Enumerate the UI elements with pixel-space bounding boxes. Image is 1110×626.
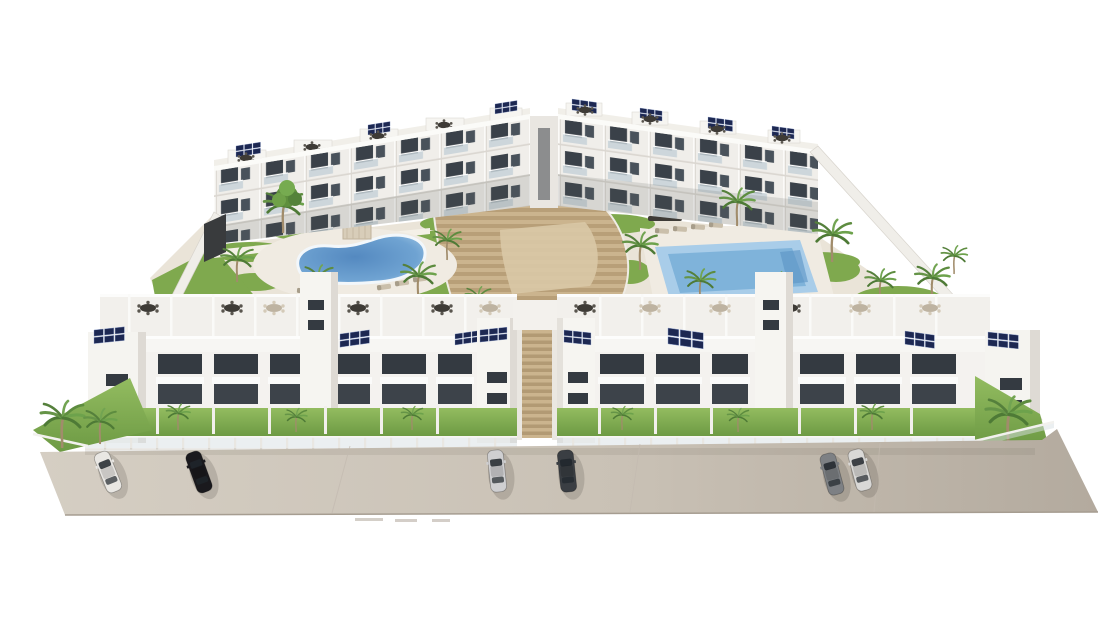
- site-render: Aerial 3D architectural rendering of a n…: [0, 0, 1110, 626]
- central-stair-core: [530, 116, 558, 208]
- front-left-building: [85, 272, 517, 450]
- front-right-building: [557, 272, 1042, 450]
- stairs-landing: [500, 222, 598, 294]
- front-gardens: [557, 408, 985, 436]
- front-central-passage: [513, 300, 557, 440]
- passage-bridge: [513, 300, 557, 330]
- render-stage: Aerial 3D architectural rendering of a n…: [0, 0, 1110, 626]
